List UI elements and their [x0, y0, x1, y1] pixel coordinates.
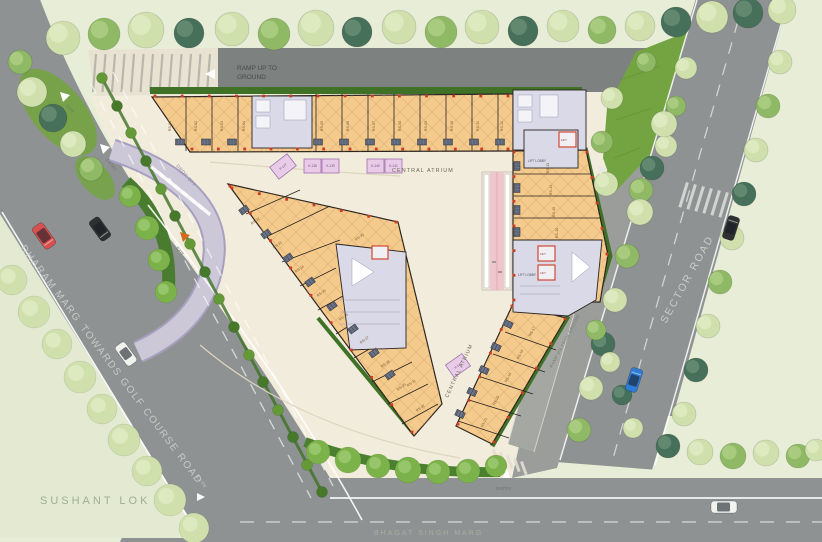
column-tick	[513, 299, 516, 302]
column-tick	[401, 148, 404, 151]
tree-icon	[636, 52, 656, 72]
bush-icon	[395, 457, 421, 483]
column-tick	[270, 148, 273, 151]
tree-icon	[696, 1, 728, 33]
tree-icon	[298, 10, 334, 46]
bush-icon	[87, 394, 117, 424]
lift-lobby-right-label: LIFT LOBBY	[518, 273, 537, 277]
column-tick	[262, 95, 265, 98]
tree-icon	[547, 10, 579, 42]
tree-icon	[567, 418, 591, 442]
column-tick	[454, 148, 457, 151]
tree-icon	[720, 443, 746, 469]
unit-label: RS-04	[242, 121, 246, 131]
tree-icon	[591, 131, 613, 153]
kiosk-label: K-140	[371, 164, 380, 168]
median-bush-icon	[258, 377, 269, 388]
unit-label: RS-10	[450, 121, 454, 131]
column-tick	[601, 227, 604, 230]
tree-icon	[623, 418, 643, 438]
column-tick	[395, 221, 398, 224]
column-tick	[249, 212, 252, 215]
tree-icon	[465, 10, 499, 44]
unit-label: RS-02	[194, 121, 198, 131]
bush-icon	[456, 459, 480, 483]
tree-icon	[672, 402, 696, 426]
tree-icon	[603, 288, 627, 312]
shop-shutter	[514, 206, 520, 215]
tree-icon	[768, 50, 792, 74]
site-plan-canvas: K-137K-138K-139K-140K-141K-142 RS-01RS-0…	[0, 0, 822, 542]
column-tick	[606, 253, 609, 256]
column-tick	[507, 95, 510, 98]
tree-icon	[17, 77, 47, 107]
column-tick	[398, 95, 401, 98]
column-tick	[340, 209, 343, 212]
column-tick	[243, 148, 246, 151]
kiosk: K-139	[322, 159, 339, 173]
tree-icon	[627, 199, 653, 225]
column-tick	[371, 95, 374, 98]
column-tick	[513, 151, 516, 154]
bush-icon	[335, 447, 361, 473]
tree-icon	[696, 314, 720, 338]
column-tick	[330, 321, 333, 324]
column-tick	[285, 198, 288, 201]
column-tick	[411, 431, 414, 434]
unit-label: RS-05	[320, 121, 324, 131]
tree-icon	[128, 12, 164, 48]
shop-shutter	[314, 139, 323, 145]
median-bush-icon	[214, 294, 225, 305]
tree-icon	[342, 17, 372, 47]
column-tick	[513, 249, 516, 252]
column-tick	[500, 328, 503, 331]
column-tick	[586, 151, 589, 154]
entry-bottom-label: ENTRY	[496, 486, 512, 491]
unit-label: RS-11	[476, 121, 480, 131]
tree-icon	[258, 18, 290, 50]
column-tick	[370, 376, 373, 379]
column-tick	[513, 274, 516, 277]
column-tick	[480, 148, 483, 151]
tree-icon	[753, 440, 779, 466]
column-tick	[350, 349, 353, 352]
sushant-lok-label: SUSHANT LOK	[40, 495, 150, 507]
column-tick	[390, 403, 393, 406]
central-atrium-top-label: CENTRAL ATRIUM	[392, 168, 454, 174]
tree-icon	[215, 12, 249, 46]
column-tick	[317, 95, 320, 98]
bush-icon	[485, 455, 507, 477]
shop-shutter	[496, 139, 505, 145]
tree-icon	[588, 16, 616, 44]
bush-icon	[119, 185, 141, 207]
bush-icon	[148, 249, 170, 271]
tree-icon	[60, 131, 86, 157]
column-tick	[513, 200, 516, 203]
kiosk-label: K-139	[326, 164, 335, 168]
tree-icon	[655, 135, 677, 157]
median-bush-icon	[185, 239, 196, 250]
tree-icon	[687, 439, 713, 465]
bush-icon	[366, 454, 390, 478]
unit-label: RS-15	[552, 207, 556, 217]
tree-icon	[586, 320, 606, 340]
unit-label: RS-13	[546, 163, 550, 173]
unit-label: RS-06	[346, 121, 350, 131]
escalators	[482, 172, 512, 290]
column-tick	[269, 239, 272, 242]
column-tick	[549, 342, 552, 345]
column-tick	[296, 148, 299, 151]
column-tick	[367, 215, 370, 218]
column-tick	[489, 352, 492, 355]
median-bush-icon	[244, 350, 255, 361]
column-tick	[564, 318, 567, 321]
tree-icon	[594, 172, 618, 196]
column-tick	[507, 416, 510, 419]
unit-label: RS-03	[220, 121, 224, 131]
shop-shutter	[514, 228, 520, 237]
tree-icon	[768, 0, 796, 24]
column-tick	[596, 202, 599, 205]
median-bush-icon	[126, 128, 137, 139]
tree-icon	[174, 18, 204, 48]
tree-icon	[651, 111, 677, 137]
column-tick	[154, 95, 157, 98]
unit-label: RS-14	[549, 185, 553, 195]
tree-icon	[508, 16, 538, 46]
bush-icon	[154, 484, 186, 516]
unit-label: RS-12	[500, 121, 504, 131]
tree-icon	[744, 138, 768, 162]
column-tick	[457, 423, 460, 426]
bush-icon	[64, 361, 96, 393]
bush-icon	[18, 296, 50, 328]
lift-label-2: LIFT	[540, 252, 546, 256]
median-bush-icon	[229, 322, 240, 333]
kiosk: K-138	[304, 159, 321, 173]
unit-label: RS-16	[555, 228, 559, 238]
bush-icon	[135, 216, 159, 240]
bush-icon	[306, 440, 330, 464]
bush-icon	[155, 281, 177, 303]
shop-shutter	[470, 139, 479, 145]
shop-shutter	[514, 162, 520, 171]
bush-icon	[42, 329, 72, 359]
bush-icon	[179, 513, 209, 542]
shop-shutter	[418, 139, 427, 145]
column-tick	[513, 225, 516, 228]
column-tick	[231, 187, 234, 190]
median-bush-icon	[288, 432, 299, 443]
unit-label: RS-08	[398, 121, 402, 131]
column-tick	[493, 441, 496, 444]
column-tick	[322, 148, 325, 151]
tree-icon	[79, 157, 103, 181]
column-tick	[375, 148, 378, 151]
bush-icon	[426, 460, 450, 484]
lift-label-1: LIFT	[561, 138, 567, 142]
ramp-up-label: RAMP UP TO	[237, 65, 277, 72]
bush-icon	[108, 424, 140, 456]
column-tick	[521, 391, 524, 394]
column-tick	[217, 148, 220, 151]
bush-icon	[0, 265, 27, 295]
bush-icon	[132, 456, 162, 486]
column-tick	[313, 204, 316, 207]
car-icon	[711, 501, 737, 513]
tree-icon	[425, 16, 457, 48]
median-bush-icon	[170, 211, 181, 222]
column-tick	[289, 95, 292, 98]
shop-shutter	[176, 139, 185, 145]
column-tick	[289, 267, 292, 270]
column-tick	[349, 148, 352, 151]
column-tick	[591, 176, 594, 179]
median-bush-icon	[273, 405, 284, 416]
bhagat-singh-marg-label: BHAGAT SINGH MARG	[374, 530, 483, 537]
core-right	[513, 240, 602, 316]
column-tick	[535, 367, 538, 370]
shop-shutter	[228, 139, 237, 145]
column-tick	[479, 95, 482, 98]
tree-icon	[629, 178, 653, 202]
column-tick	[258, 192, 261, 195]
tree-icon	[733, 0, 763, 28]
median-bush-icon	[112, 101, 123, 112]
shop-shutter	[366, 139, 375, 145]
shop-shutter	[392, 139, 401, 145]
tree-icon	[8, 50, 32, 74]
tree-icon	[46, 21, 80, 55]
kiosk: K-140	[367, 159, 384, 173]
column-tick	[511, 305, 514, 308]
tree-icon	[39, 104, 67, 132]
shop-shutter	[340, 139, 349, 145]
shop-shutter	[444, 139, 453, 145]
median-bush-icon	[200, 267, 211, 278]
column-tick	[452, 95, 455, 98]
tree-icon	[640, 156, 664, 180]
column-tick	[513, 175, 516, 178]
tree-icon	[615, 244, 639, 268]
unit-label: RS-09	[424, 121, 428, 131]
column-tick	[309, 294, 312, 297]
tree-icon	[382, 10, 416, 44]
tree-icon	[601, 87, 623, 109]
tree-icon	[88, 18, 120, 50]
median-bush-icon	[141, 156, 152, 167]
median-bush-icon	[317, 487, 328, 498]
tree-icon	[756, 94, 780, 118]
column-tick	[191, 148, 194, 151]
tree-icon	[600, 352, 620, 372]
column-tick	[428, 148, 431, 151]
column-tick	[235, 95, 238, 98]
shop-shutter	[514, 184, 520, 193]
column-tick	[344, 95, 347, 98]
column-tick	[181, 95, 184, 98]
lift-label-3: LIFT	[540, 271, 546, 275]
lift-lobby-top-label: LIFT LOBBY	[528, 159, 547, 163]
column-tick	[478, 375, 481, 378]
kiosk-label: K-138	[308, 164, 317, 168]
shop-shutter	[202, 139, 211, 145]
column-tick	[425, 95, 428, 98]
column-tick	[467, 399, 470, 402]
tree-icon	[579, 376, 603, 400]
median-bush-icon	[97, 73, 108, 84]
ramp-up-label-2: GROUND	[237, 74, 266, 81]
tree-icon	[661, 7, 691, 37]
column-tick	[208, 95, 211, 98]
site-plan-drawing: K-137K-138K-139K-140K-141K-142 RS-01RS-0…	[0, 0, 822, 542]
tree-icon	[656, 434, 680, 458]
tree-icon	[625, 11, 655, 41]
unit-label: RS-01	[168, 121, 172, 131]
tree-icon	[684, 358, 708, 382]
unit-label: RS-07	[372, 121, 376, 131]
column-tick	[507, 148, 510, 151]
tree-icon	[732, 182, 756, 206]
tree-icon	[675, 57, 697, 79]
median-bush-icon	[156, 184, 167, 195]
tree-icon	[708, 270, 732, 294]
lift-box	[372, 246, 388, 259]
